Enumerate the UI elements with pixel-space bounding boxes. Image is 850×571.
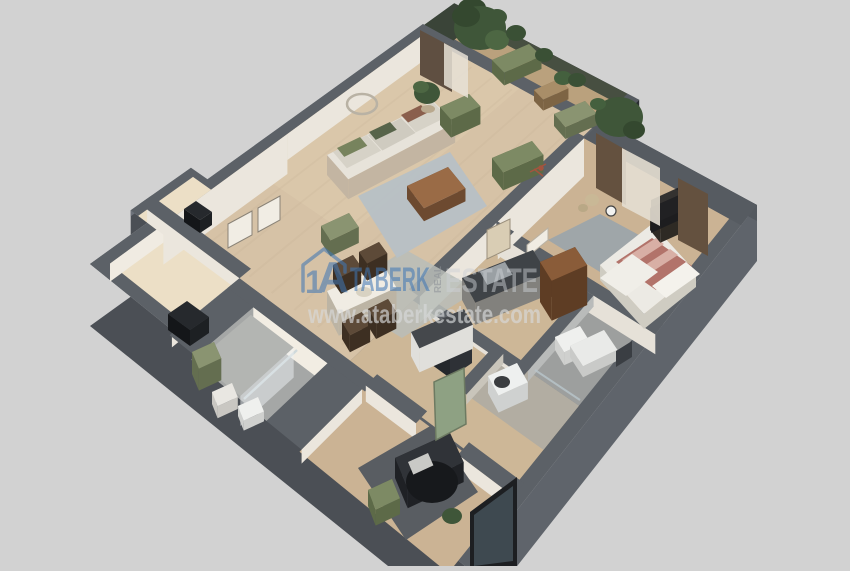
- svg-text:A: A: [317, 253, 349, 302]
- svg-text:TABERK: TABERK: [350, 261, 430, 299]
- svg-text:www.ataberkestate.com: www.ataberkestate.com: [307, 299, 541, 329]
- svg-text:REAL: REAL: [433, 266, 444, 293]
- svg-text:ESTATE: ESTATE: [445, 262, 538, 300]
